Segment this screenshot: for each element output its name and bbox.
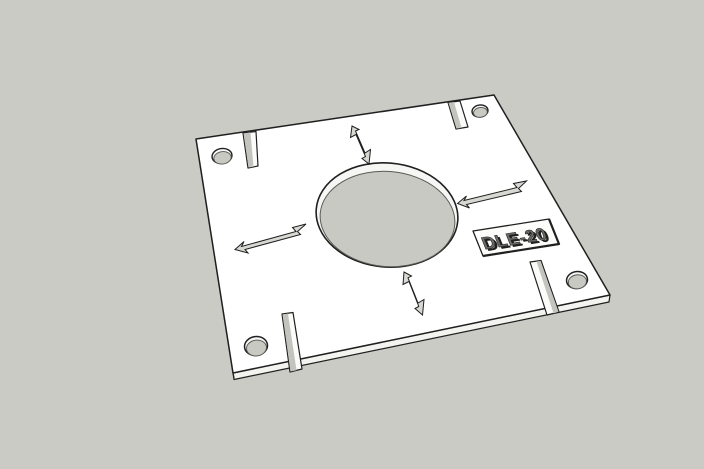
model-canvas: DLE-20 DLE-20 DLE-20 (0, 0, 704, 469)
model-viewport[interactable]: DLE-20 DLE-20 DLE-20 (0, 0, 704, 469)
